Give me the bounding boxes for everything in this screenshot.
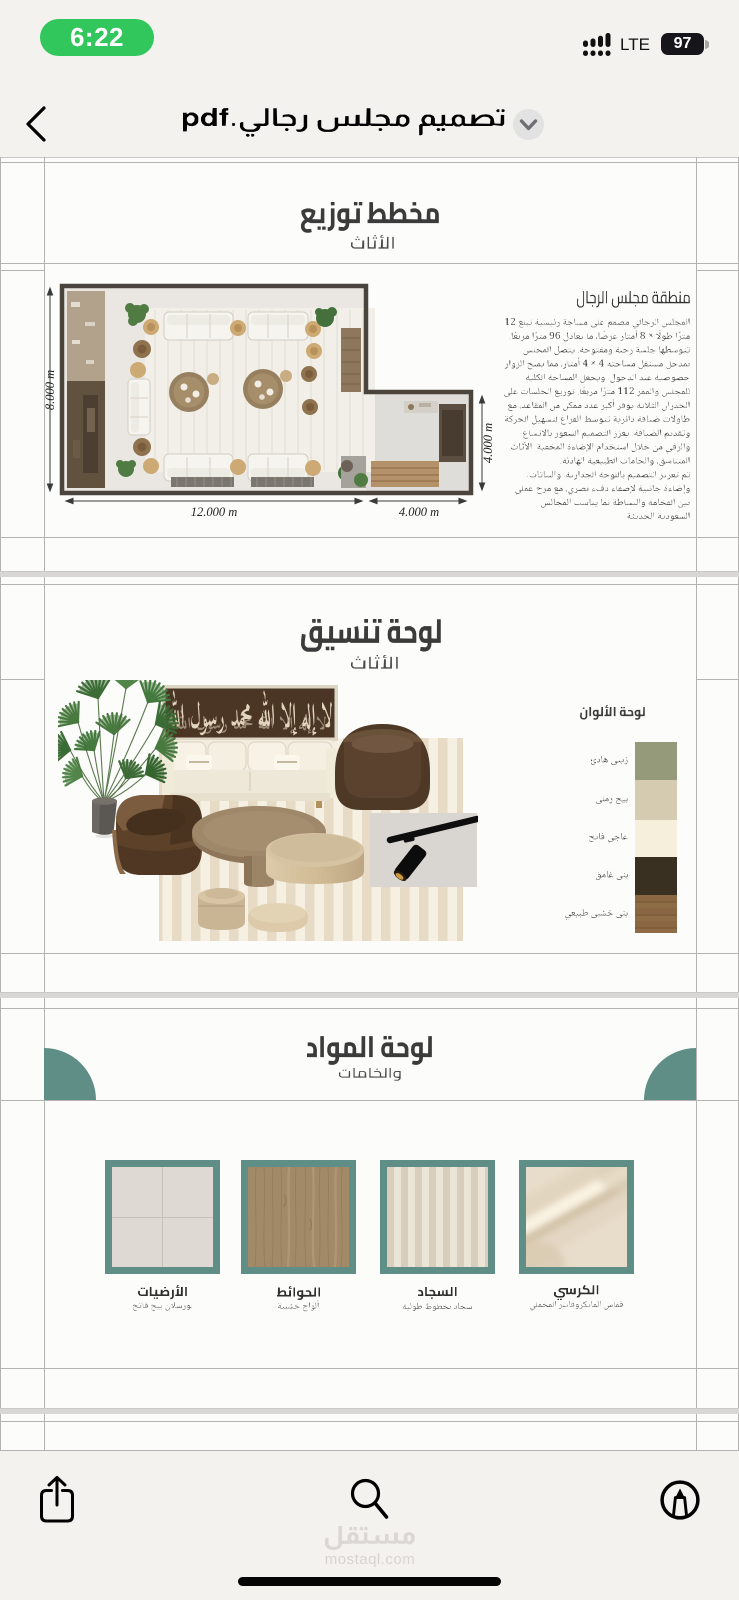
svg-text:4.000 m: 4.000 m bbox=[481, 423, 495, 463]
svg-text:12.000 m: 12.000 m bbox=[191, 505, 238, 519]
svg-text:4.000 m: 4.000 m bbox=[399, 505, 439, 519]
svg-text:8.000 m: 8.000 m bbox=[45, 370, 57, 410]
